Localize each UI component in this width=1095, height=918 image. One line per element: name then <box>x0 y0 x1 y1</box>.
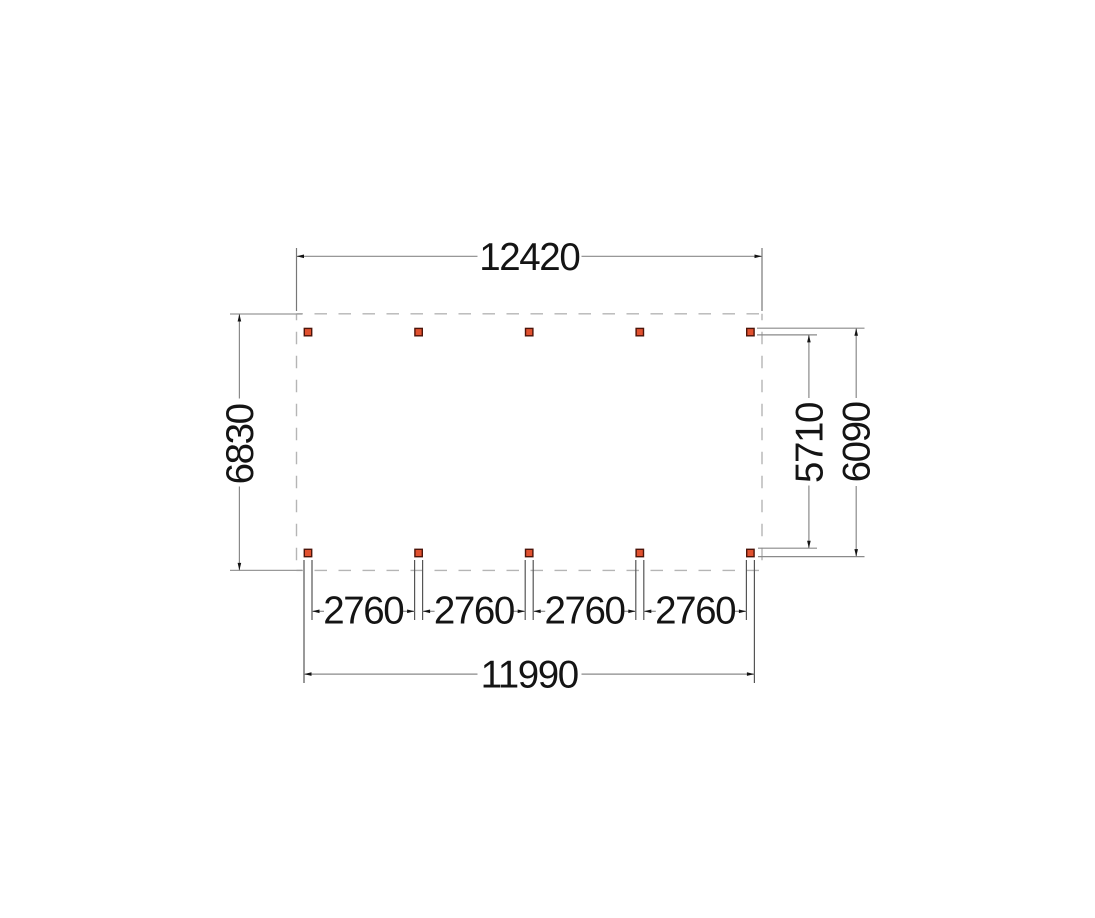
svg-text:12420: 12420 <box>479 236 579 279</box>
svg-text:11990: 11990 <box>481 654 578 697</box>
svg-text:2760: 2760 <box>655 590 735 633</box>
svg-text:2760: 2760 <box>323 590 403 633</box>
svg-text:2760: 2760 <box>544 590 624 633</box>
svg-text:2760: 2760 <box>434 590 514 633</box>
svg-text:6090: 6090 <box>836 402 879 482</box>
svg-text:6830: 6830 <box>219 404 262 484</box>
svg-text:5710: 5710 <box>788 403 831 483</box>
